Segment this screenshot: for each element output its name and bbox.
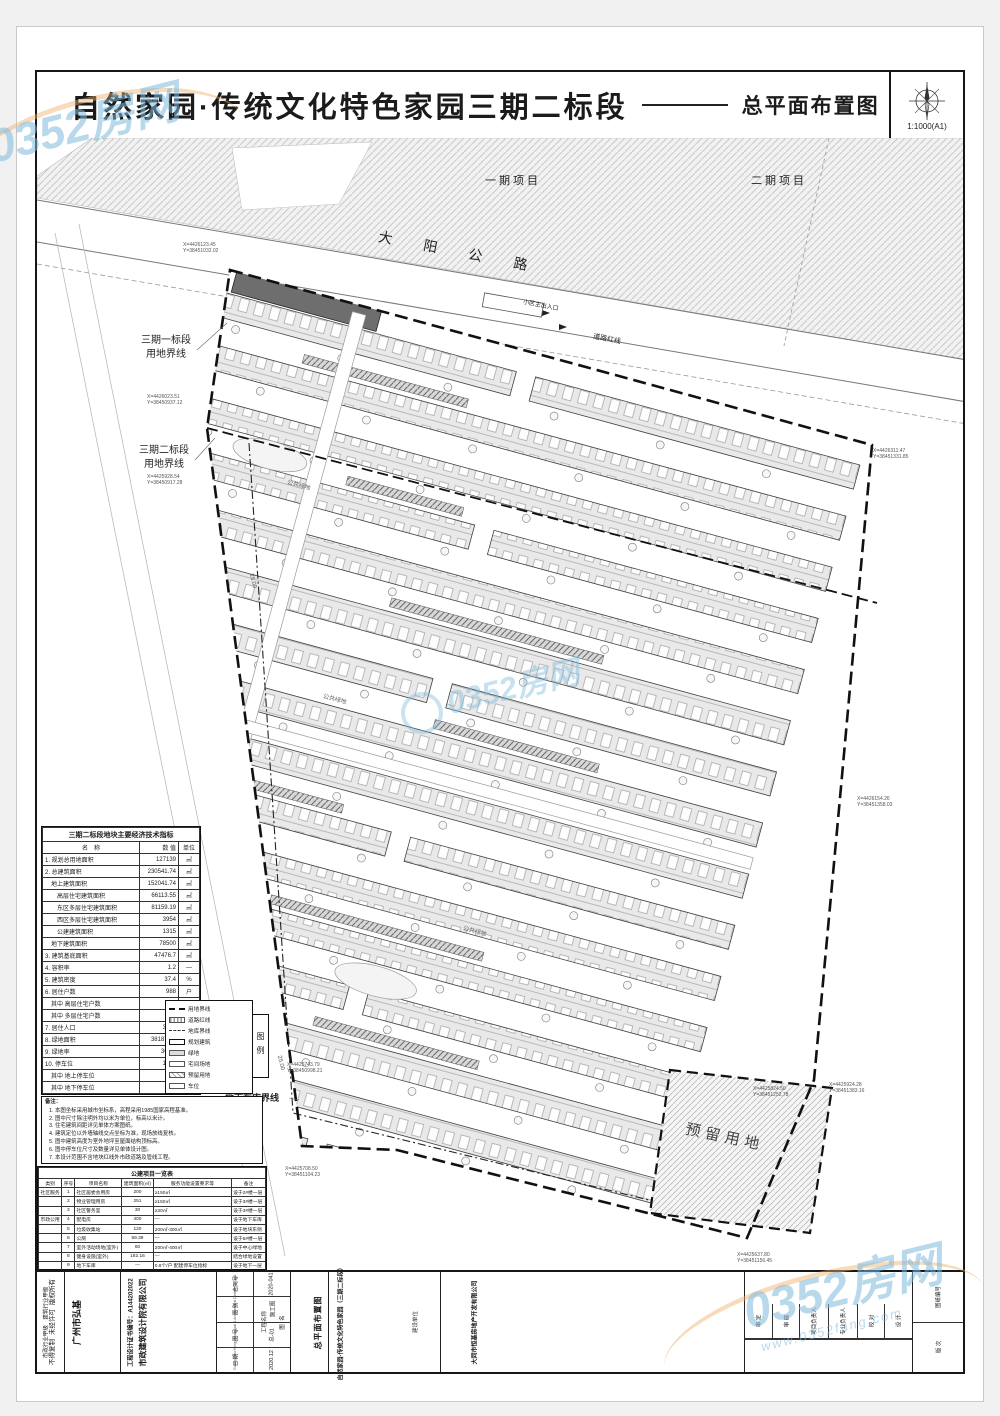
legend-swatch-icon (169, 1017, 185, 1023)
coord-callout: X=4426123.45Y=38451032.02 (183, 242, 218, 255)
scale-label: 1:1000(A1) (907, 122, 947, 131)
econ-row: 1. 规划总用地面积 127139 ㎡ (43, 854, 200, 866)
reserved-land (650, 1070, 832, 1233)
title-block-blank-cell (441, 1272, 745, 1372)
compass-box: 1:1000(A1) (889, 72, 963, 138)
econ-row: 5. 建筑密度 37.4 % (43, 974, 200, 986)
coord-callout: X=4425924.28Y=38451383.16 (829, 1082, 864, 1095)
econ-row: 地上建筑面积 152041.74 ㎡ (43, 878, 200, 890)
legend-item: 地库界线 (169, 1025, 249, 1036)
coord-callout: X=4425743.79Y=38450998.21 (287, 1062, 322, 1075)
note-item: 建筑定位以外墙轴线交点坐标为准，现场放线复核。 (55, 1131, 259, 1139)
pub-row: 5 垃圾收集站 120 200㎡-300㎡ 设于地块东侧 (39, 1224, 266, 1233)
econ-header-row: 名 称 数 值 单位 (43, 842, 200, 854)
sign-col: 审 核 (773, 1304, 801, 1340)
drawing-frame: 自然家园·传统文化特色家园三期二标段 总平面布置图 1:1000(A1) (35, 70, 965, 1374)
entrance-arrow2 (559, 324, 567, 330)
coord-callout: X=4425637.80Y=38451156.45 (737, 1252, 772, 1265)
econ-row: 西区多层住宅建筑面积 3954 ㎡ (43, 914, 200, 926)
title-block: 版权所有 未经许可 不得复制 市政行业甲级 建筑行业甲级 工程设计证书编号：A1… (37, 1270, 963, 1372)
econ-row: 地下建筑面积 78500 ㎡ (43, 938, 200, 950)
notes-list: 本图坐标采用城市坐标系，高程采用1985国家高程基准。图中尺寸除注明外均以米为单… (55, 1108, 259, 1163)
legend-swatch-icon (169, 1030, 185, 1031)
sheet-name-column: 图 名 总平面布置图 (291, 1272, 329, 1372)
legend-item: 绿地 (169, 1047, 249, 1058)
pub-row: 7 室外活动场地(室外) 60 200㎡-400㎡ 设于中心绿地 (39, 1243, 266, 1252)
signature-grid: 审 定 审 核 项目负责人 专业负责人 校 对 设 计 (745, 1272, 913, 1372)
note-item: 本图坐标采用城市坐标系，高程采用1985国家高程基准。 (55, 1108, 259, 1116)
pub-header-row: 类别 序号 项目名称 建筑面积(㎡) 服务功能设置要求等 备注 (39, 1179, 266, 1188)
site-plan-map: 一期项目 二期项目 大 阳 公 路 道路红线 小区主出入口 三期一标段用地界线 … (37, 138, 963, 1270)
green-space-2 (167, 747, 243, 791)
legend-swatch-icon (169, 1050, 185, 1056)
pub-row: 社区服务 1 社区居委会用房 200 ≥150㎡ 设于2#楼一层 (39, 1188, 266, 1197)
econ-row: 2. 总建筑面积 230541.74 ㎡ (43, 866, 200, 878)
legend-item: 道路红线 (169, 1014, 249, 1025)
legend-items: 用地界线 道路红线 地库界线 (165, 1000, 253, 1094)
meta-row: 日 期 2020.12 (217, 1348, 290, 1372)
note-item: 图中建筑高度为室外地坪至屋面结构顶标高。 (55, 1139, 259, 1147)
sheet-name: 总平面布置图 (313, 1295, 324, 1349)
pub-row: 3 社区警务室 30 ≥30㎡ 设于3#楼一层 (39, 1206, 266, 1215)
sign-col: 设 计 (885, 1304, 912, 1340)
drawing-sheet-page: 自然家园·传统文化特色家园三期二标段 总平面布置图 1:1000(A1) (0, 0, 1000, 1416)
pub-table-title: 公建项目一览表 (39, 1168, 266, 1179)
pub-row: 9 地下车库 — 0.8个/户 配建停车位指标 设于地下一层 (39, 1261, 266, 1270)
cert-number: 工程设计证书编号：A144202022 (126, 1278, 135, 1366)
title-bar: 自然家园·传统文化特色家园三期二标段 总平面布置图 1:1000(A1) (37, 72, 963, 140)
company-name-2: 市政建筑设计院有限公司 (138, 1278, 149, 1366)
drawing-title: 自然家园·传统文化特色家园三期二标段 (71, 84, 628, 126)
pub-row: 6 公厕 59.38 — 设于5#楼一层 (39, 1234, 266, 1243)
legend-item: 规划建筑 (169, 1036, 249, 1047)
notes-panel: 备注： 本图坐标采用城市坐标系，高程采用1985国家高程基准。图中尺寸除注明外均… (41, 1096, 263, 1164)
sign-col: 校 对 (858, 1304, 886, 1340)
design-company-column: 广州市弘基 市政建筑设计院有限公司 Guangzhou Hongji Munic… (121, 1272, 217, 1372)
econ-row: 6. 居住户数 988 户 (43, 986, 200, 998)
pub-row: 8 健身设施(室外) 182.16 — 结合绿地设置 (39, 1252, 266, 1261)
sign-col: 专业负责人 (829, 1304, 858, 1340)
legend-item: 车位 (169, 1080, 249, 1091)
coord-callout: X=4426023.51Y=38450937.12 (147, 394, 182, 407)
note-item: 图中停车位尺寸及数量详见单体设计图。 (55, 1147, 259, 1155)
legend-swatch-icon (169, 1072, 185, 1078)
coord-callout: X=4426311.47Y=38451331.85 (873, 448, 908, 461)
legend-item: 宅间场地 (169, 1058, 249, 1069)
notes-title: 备注： (45, 1099, 61, 1105)
legend-item: 预留用地 (169, 1069, 249, 1080)
legend-swatch-icon (169, 1039, 185, 1045)
coord-callout: X=4425708.50Y=38451104.23 (285, 1166, 320, 1179)
project-name: 自然家园·传统文化特色家园（三期二标段） (335, 1264, 344, 1380)
legend: 用地界线 道路红线 地库界线 (165, 1000, 269, 1094)
coord-callout: X=4425824.50Y=38451252.78 (753, 1086, 788, 1099)
econ-row: 公建建筑面积 1315 ㎡ (43, 926, 200, 938)
legend-swatch-icon (169, 1061, 185, 1067)
title-dash-rule (642, 104, 728, 106)
compass-icon (907, 80, 947, 120)
pub-row: 2 物业管理用房 251 ≥150㎡ 设于3#楼一层 (39, 1197, 266, 1206)
coord-callout: X=4426154.26Y=38451358.03 (857, 796, 892, 809)
note-item: 本设计范围不含地块红线外市政道路及管线工程。 (55, 1155, 259, 1163)
cert-grades: 市政行业甲级 建筑行业甲级 (42, 1286, 51, 1358)
owner-name: 大同市恒基房地产开发有限公司 (469, 1280, 478, 1364)
econ-table-title: 三期二标段地块主要经济技术指标 (43, 828, 200, 842)
pub-row: 市政公用 4 配电房 400 — 设于地下车库 (39, 1215, 266, 1224)
econ-row: 东区多层住宅建筑面积 81159.19 ㎡ (43, 902, 200, 914)
econ-row: 高层住宅建筑面积 66113.55 ㎡ (43, 890, 200, 902)
extra-column: 图纸编号 版 次 (913, 1272, 963, 1372)
econ-row: 4. 容积率 1.2 — (43, 962, 200, 974)
legend-swatch-icon (169, 1008, 185, 1010)
phase2-label: 二期项目 (751, 172, 807, 188)
legend-tab-label: 图例 (253, 1014, 269, 1078)
public-buildings-table: 公建项目一览表 类别 序号 项目名称 建筑面积(㎡) 服务功能设置要求等 备注 (37, 1166, 267, 1270)
legend-item: 用地界线 (169, 1003, 249, 1014)
company-name-1: 广州市弘基 (70, 1299, 83, 1344)
section1-boundary-label: 三期一标段用地界线 (135, 334, 197, 361)
entrance-arrow (542, 310, 550, 316)
drawing-subtitle: 总平面布置图 (742, 90, 880, 120)
title-area: 自然家园·传统文化特色家园三期二标段 总平面布置图 (37, 72, 889, 138)
sign-col: 项目负责人 (800, 1304, 829, 1340)
coord-callout: X=4425928.54Y=38450917.28 (147, 474, 182, 487)
phase1-label: 一期项目 (485, 172, 541, 188)
meta-row: 合同号 2020-041 (217, 1272, 290, 1297)
project-column: 工程名称 自然家园·传统文化特色家园（三期二标段） 建设单位 大同市恒基房地产开… (329, 1272, 441, 1372)
sign-col: 审 定 (745, 1304, 773, 1340)
econ-row: 3. 建筑基底面积 47476.7 ㎡ (43, 950, 200, 962)
section2-boundary-label: 三期二标段用地界线 (133, 444, 195, 471)
legend-swatch-icon (169, 1083, 185, 1089)
